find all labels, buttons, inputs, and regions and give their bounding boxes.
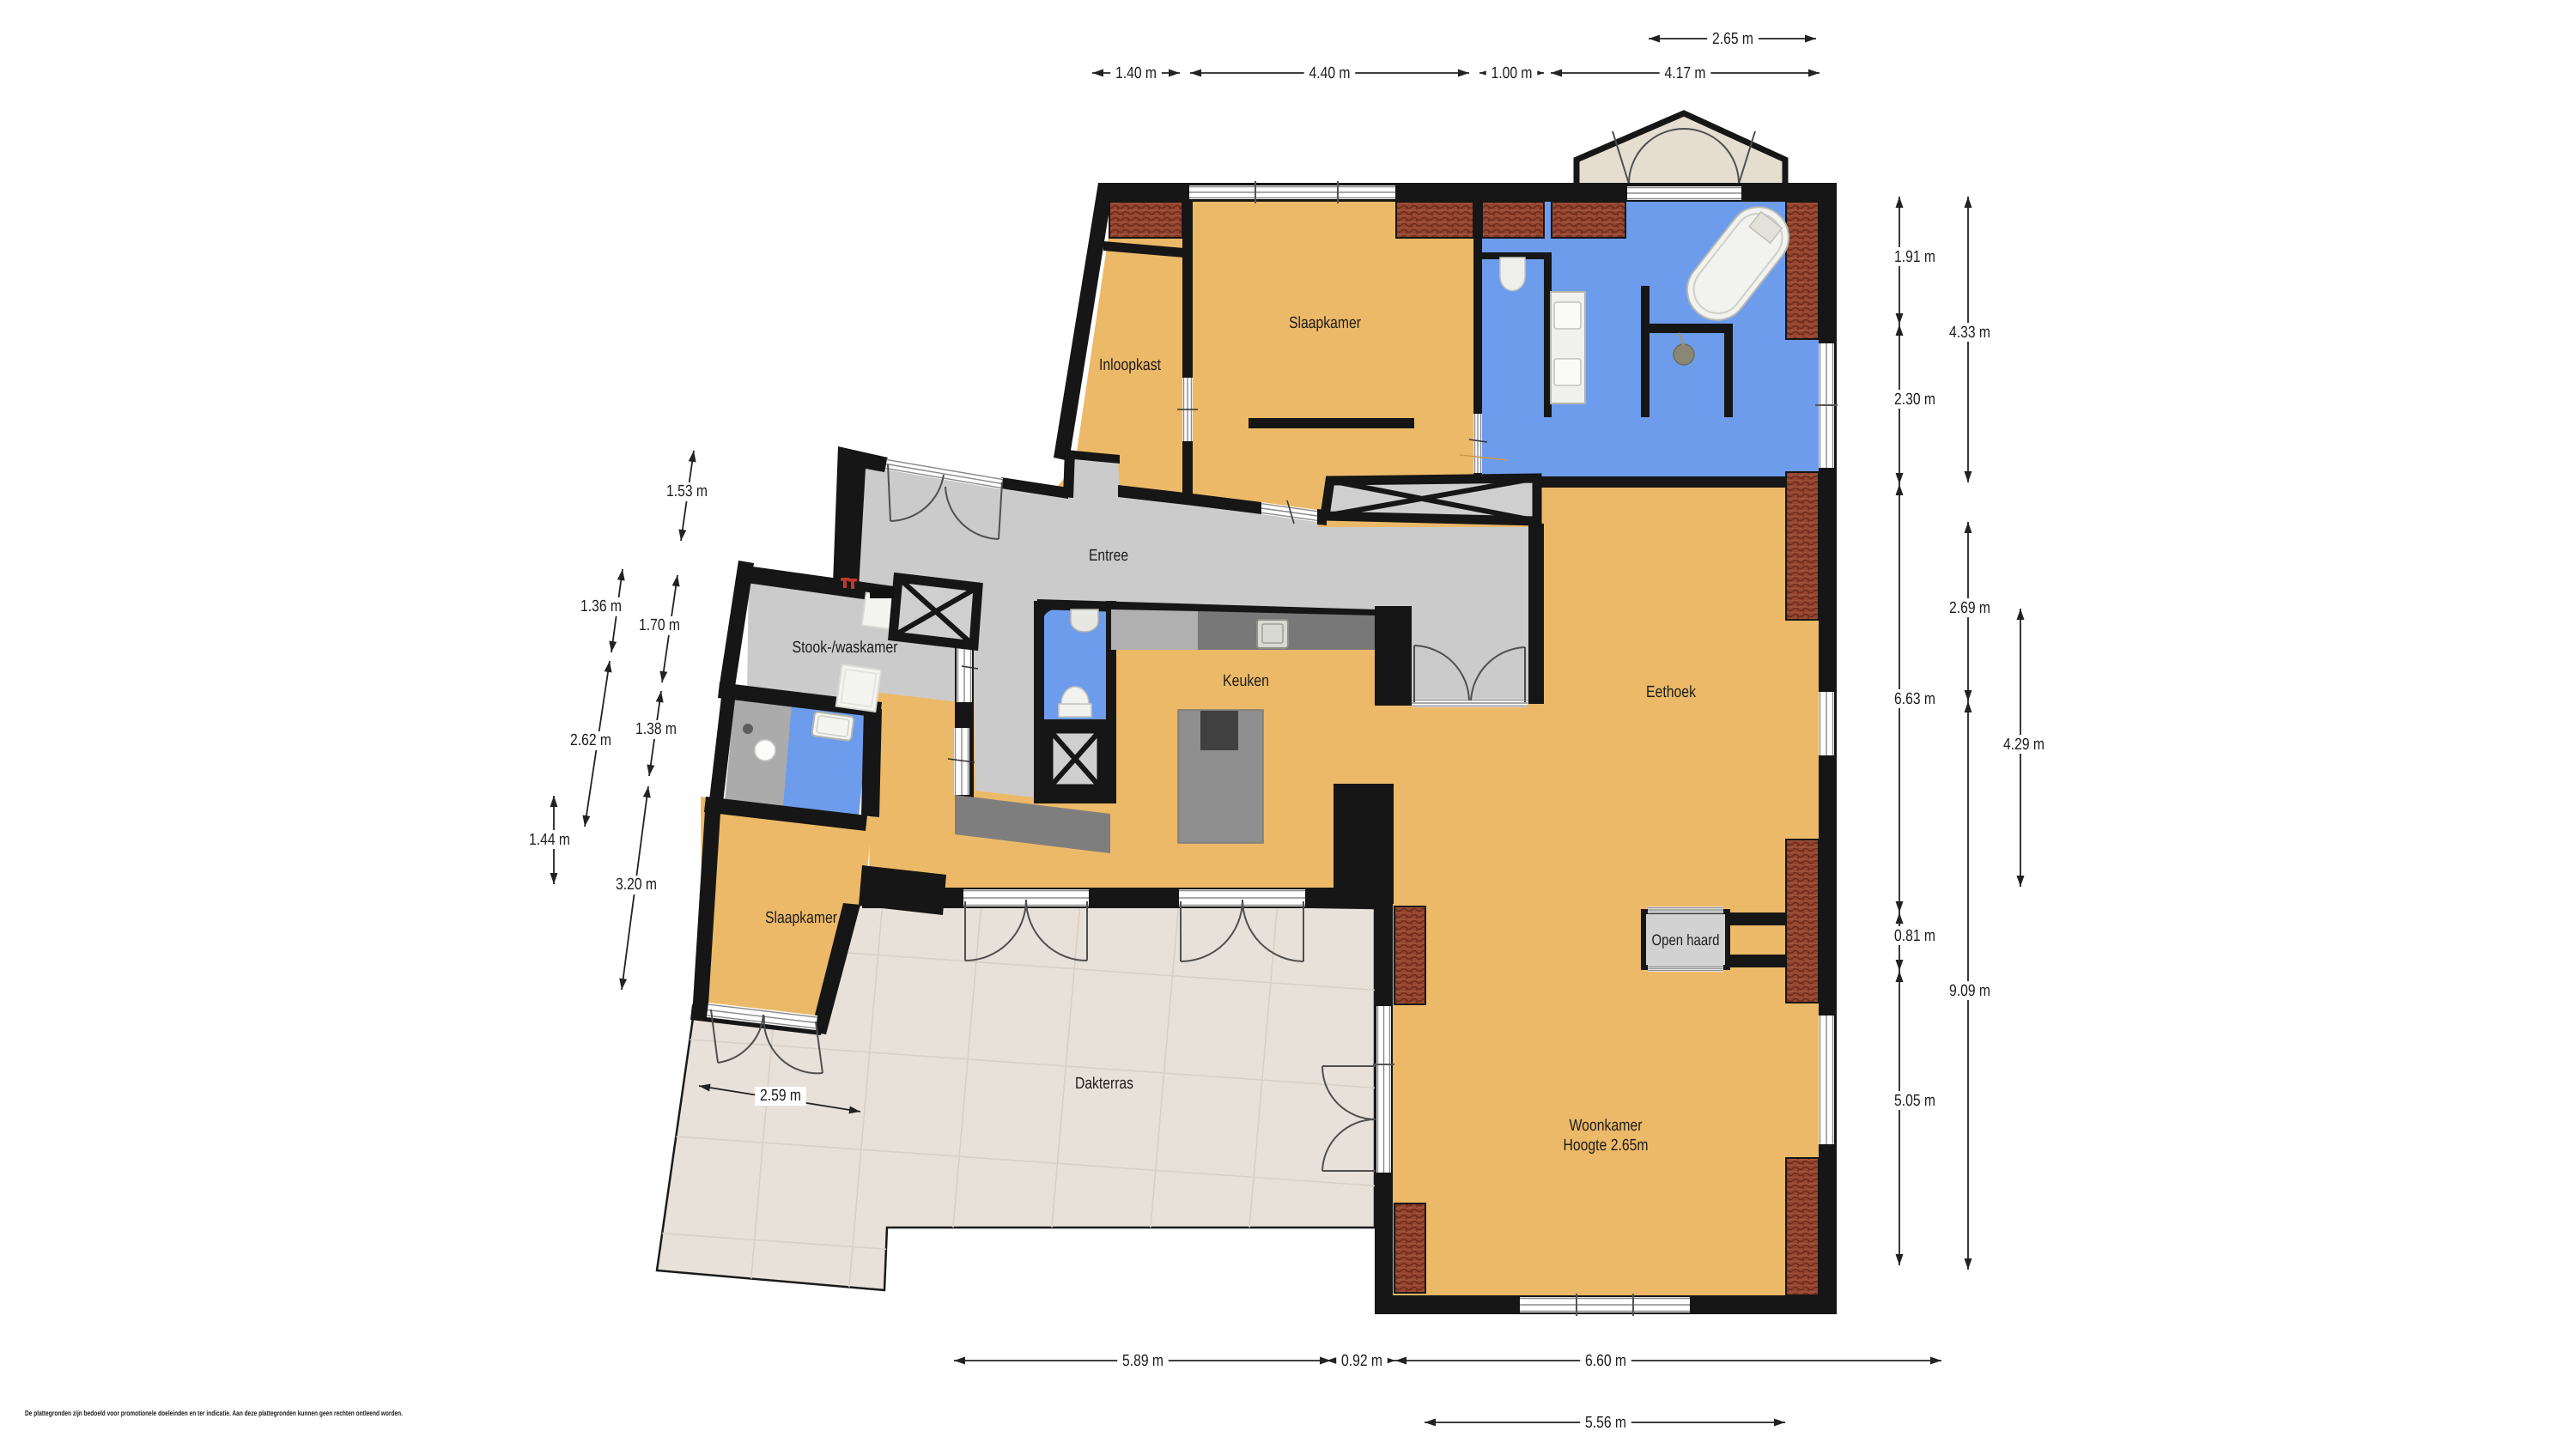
svg-text:4.33 m: 4.33 m [1949, 324, 1990, 342]
svg-text:Slaapkamer: Slaapkamer [1289, 314, 1362, 332]
svg-text:Slaapkamer: Slaapkamer [765, 909, 838, 927]
svg-text:9.09 m: 9.09 m [1949, 982, 1990, 1000]
svg-text:De plattegronden zijn bedoeld: De plattegronden zijn bedoeld voor promo… [25, 1409, 403, 1417]
svg-text:1.40 m: 1.40 m [1115, 64, 1157, 82]
svg-text:Inloopkast: Inloopkast [1099, 356, 1162, 374]
svg-text:1.53 m: 1.53 m [666, 482, 708, 500]
svg-text:1.44 m: 1.44 m [529, 831, 570, 849]
svg-text:2.30 m: 2.30 m [1894, 391, 1935, 409]
svg-text:2.65 m: 2.65 m [1712, 30, 1753, 48]
svg-text:1.91 m: 1.91 m [1894, 248, 1935, 266]
svg-text:4.29 m: 4.29 m [2003, 736, 2044, 754]
svg-text:2.69 m: 2.69 m [1949, 599, 1990, 617]
svg-text:2.59 m: 2.59 m [760, 1087, 801, 1105]
svg-text:6.60 m: 6.60 m [1585, 1352, 1626, 1370]
svg-text:3.20 m: 3.20 m [616, 876, 657, 894]
svg-text:1.36 m: 1.36 m [580, 597, 622, 615]
svg-text:0.92 m: 0.92 m [1341, 1352, 1382, 1370]
svg-text:Dakterras: Dakterras [1075, 1075, 1133, 1093]
svg-text:Hoogte 2.65m: Hoogte 2.65m [1564, 1137, 1649, 1155]
svg-text:Woonkamer: Woonkamer [1570, 1117, 1643, 1135]
svg-text:4.17 m: 4.17 m [1665, 64, 1706, 82]
svg-text:Stook-/waskamer: Stook-/waskamer [793, 639, 899, 657]
svg-text:Entree: Entree [1089, 547, 1128, 565]
svg-text:5.56 m: 5.56 m [1585, 1414, 1626, 1432]
svg-text:2.62 m: 2.62 m [570, 731, 611, 749]
svg-text:4.40 m: 4.40 m [1309, 64, 1351, 82]
svg-text:5.89 m: 5.89 m [1122, 1352, 1163, 1370]
svg-text:Keuken: Keuken [1223, 672, 1269, 690]
svg-text:6.63 m: 6.63 m [1894, 690, 1935, 708]
svg-text:Eethoek: Eethoek [1646, 683, 1696, 701]
svg-text:1.00 m: 1.00 m [1492, 64, 1533, 82]
svg-text:1.38 m: 1.38 m [635, 720, 677, 738]
svg-text:Open haard: Open haard [1652, 931, 1720, 949]
svg-text:1.70 m: 1.70 m [639, 616, 680, 634]
svg-text:5.05 m: 5.05 m [1894, 1092, 1935, 1110]
svg-text:0.81 m: 0.81 m [1894, 927, 1935, 945]
